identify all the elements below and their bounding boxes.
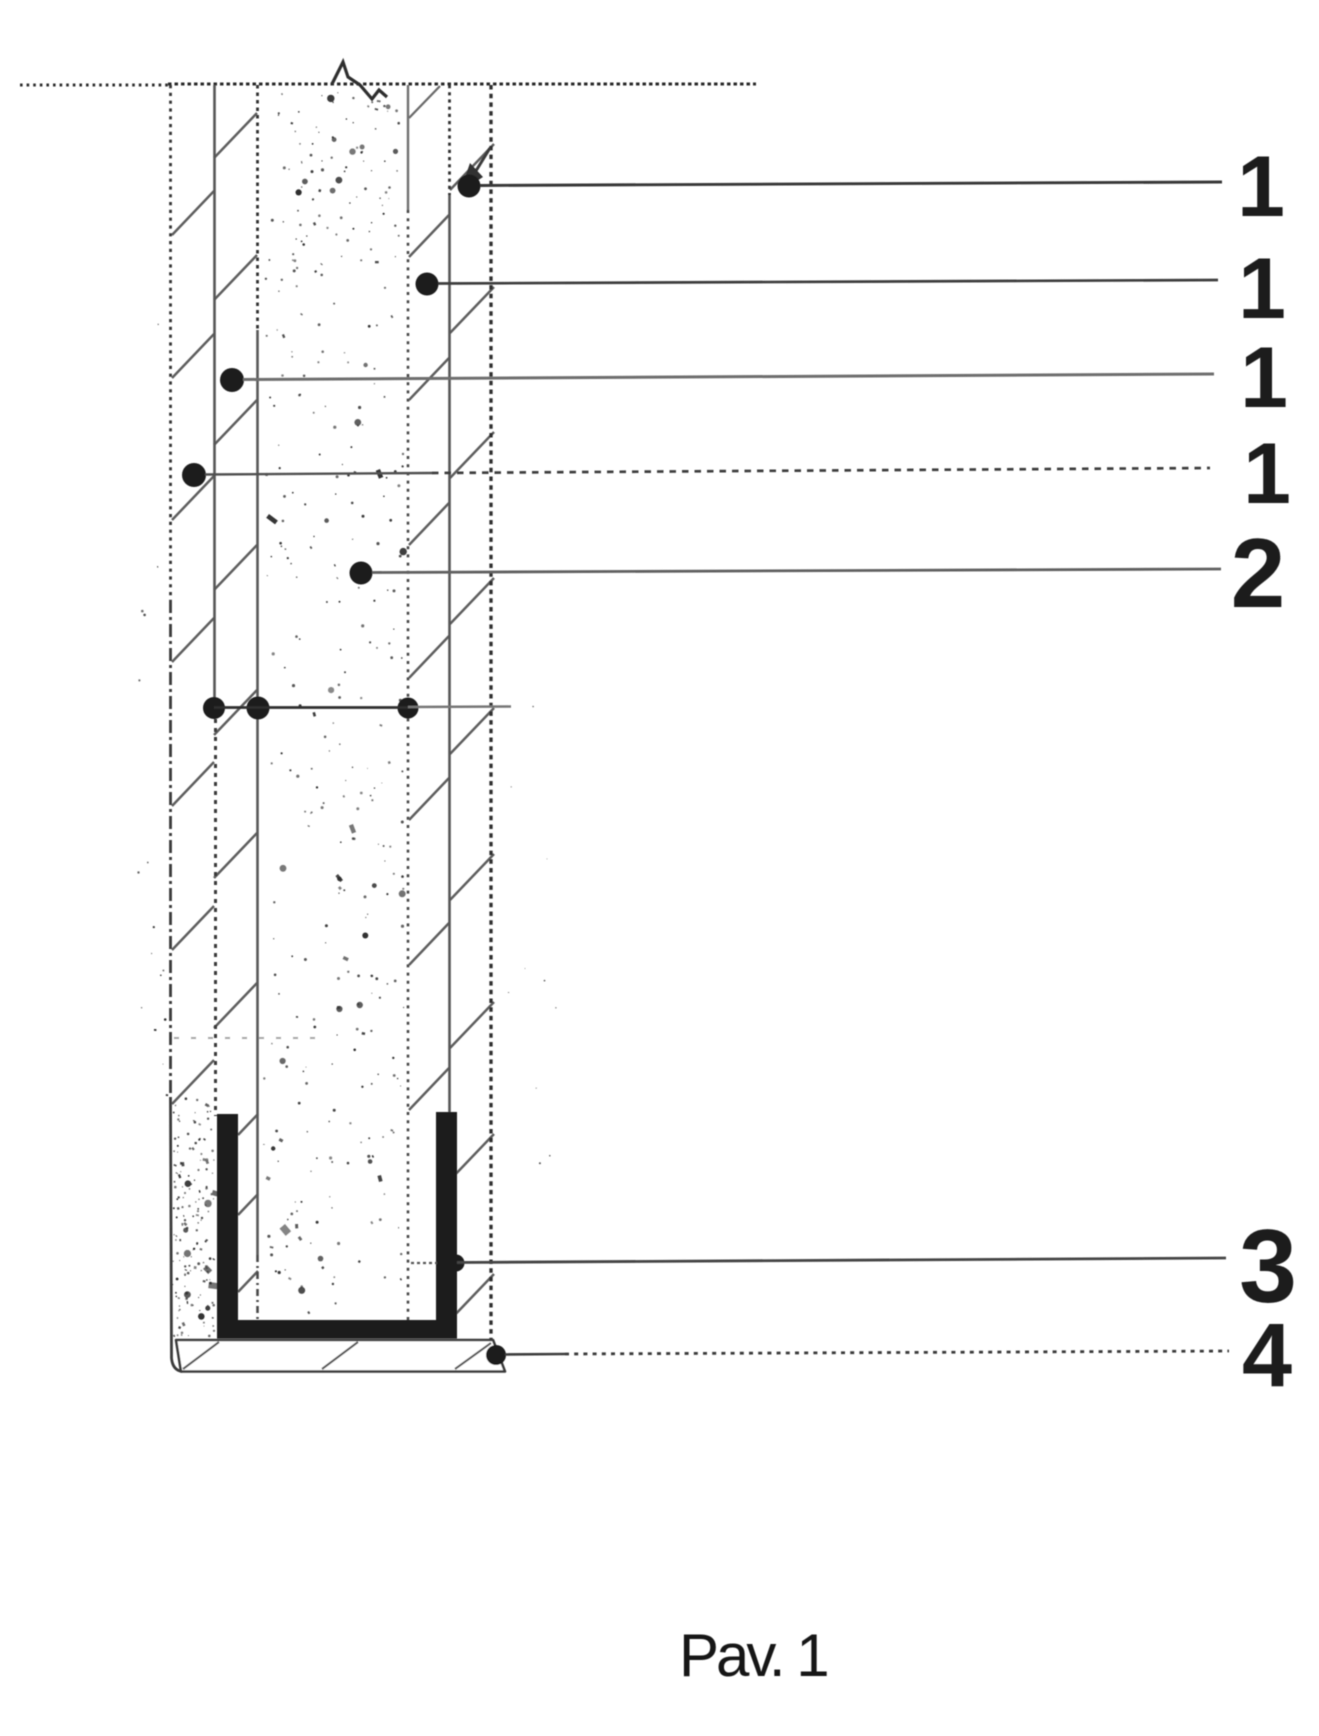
svg-text:1: 1: [1240, 330, 1288, 426]
svg-text:1: 1: [1237, 139, 1285, 235]
svg-text:1: 1: [1243, 426, 1291, 522]
svg-text:2: 2: [1231, 518, 1286, 628]
svg-text:4: 4: [1242, 1306, 1292, 1406]
svg-text:Pav. 1: Pav. 1: [679, 1622, 827, 1689]
svg-text:1: 1: [1238, 241, 1286, 337]
